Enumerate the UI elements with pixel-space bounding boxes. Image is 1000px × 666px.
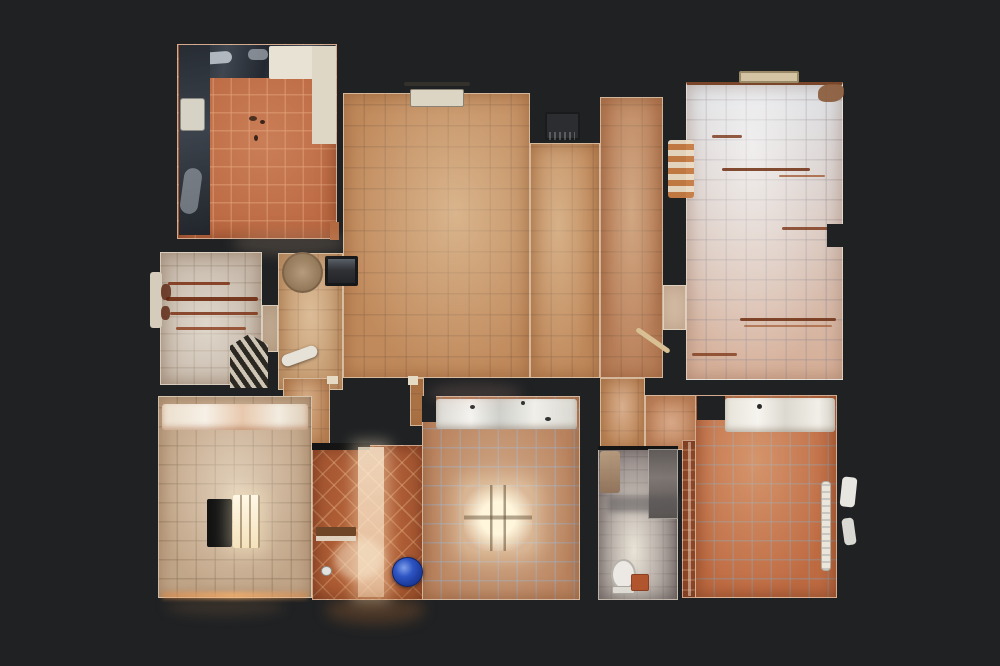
southeast-top-inset (697, 396, 725, 420)
northeast-corner-blob (818, 84, 844, 102)
kitchen-appliance (180, 98, 205, 131)
room-bedroom-northeast (686, 82, 843, 380)
bathroom-orange-mat (631, 574, 649, 591)
southwest-bed-top (162, 404, 308, 430)
northeast-streak-6 (744, 325, 832, 327)
room-living-northeast (600, 97, 663, 378)
outside-white-object-1 (839, 476, 857, 507)
scan-wisp-4 (165, 598, 285, 616)
kitchen-counter-highlight-2 (248, 49, 268, 60)
dark-table (325, 256, 358, 286)
room-living-notch (530, 143, 600, 378)
floorplan-canvas[interactable] (0, 0, 1000, 666)
hall-to-bathroom (600, 378, 645, 450)
pantry-shelf-streak-2 (166, 297, 258, 301)
northeast-streak-7 (692, 353, 737, 356)
southeast-radiator (821, 481, 831, 571)
storeroom-white-dot (321, 566, 332, 576)
pantry-shelf-streak-4 (176, 327, 246, 330)
pantry-dark-blob-2 (161, 306, 170, 320)
northeast-streak-5 (740, 318, 836, 321)
northeast-streak-1 (712, 135, 742, 138)
pantry-left-bump (150, 272, 162, 328)
northeast-streak-2 (722, 168, 810, 171)
northeast-lintel-beam (739, 71, 799, 83)
screenshot-stage (0, 0, 1000, 666)
storeroom-shelf (316, 527, 356, 536)
scan-wisp-3 (428, 383, 523, 403)
pantry-dark-blob-1 (161, 284, 171, 300)
pantry-shelf-streak-3 (170, 312, 258, 315)
south-center-bed-top (436, 399, 577, 429)
bathroom-door-leaf (600, 451, 620, 493)
south-center-bed-speck-3 (545, 417, 551, 421)
outside-white-object-2 (841, 517, 857, 545)
ladder-radiator (668, 140, 694, 198)
kitchen-floor-speck-1 (249, 116, 257, 121)
south-center-bed-speck-2 (521, 401, 525, 405)
southwest-window-light (233, 495, 260, 548)
door-frame-post-2 (408, 376, 418, 385)
south-center-bed-speck-1 (470, 405, 475, 409)
south-center-top-inset (422, 396, 436, 422)
northeast-right-notch (827, 224, 844, 247)
bathroom-gray-streak (608, 496, 678, 512)
stove-grill (549, 132, 575, 140)
kitchen-floor-speck-2 (260, 120, 265, 124)
storeroom-light-pool (334, 538, 384, 580)
northeast-streak-3 (779, 175, 825, 177)
southwest-scan-void (207, 499, 232, 547)
scan-wisp-2 (325, 596, 425, 624)
living-wall-vent-line (404, 82, 470, 86)
northeast-streak-4 (782, 227, 828, 230)
kitchen-white-counter-right (312, 46, 336, 144)
scan-wisp-1 (232, 230, 347, 256)
room-living-main (343, 93, 530, 378)
kitchen-floor-speck-3 (254, 135, 258, 141)
northeast-doorway (663, 285, 686, 330)
round-wicker-rug (282, 252, 323, 293)
southeast-bed-top (725, 398, 835, 432)
storeroom-shelf-edge (316, 536, 356, 541)
brick-strip-highlight (688, 442, 691, 596)
south-center-window-light (464, 485, 532, 551)
door-frame-post-1 (327, 376, 338, 384)
pantry-shelf-streak-1 (168, 282, 230, 285)
blue-bucket (392, 557, 423, 587)
southeast-bed-speck (757, 404, 762, 409)
living-wall-vent (410, 89, 464, 107)
